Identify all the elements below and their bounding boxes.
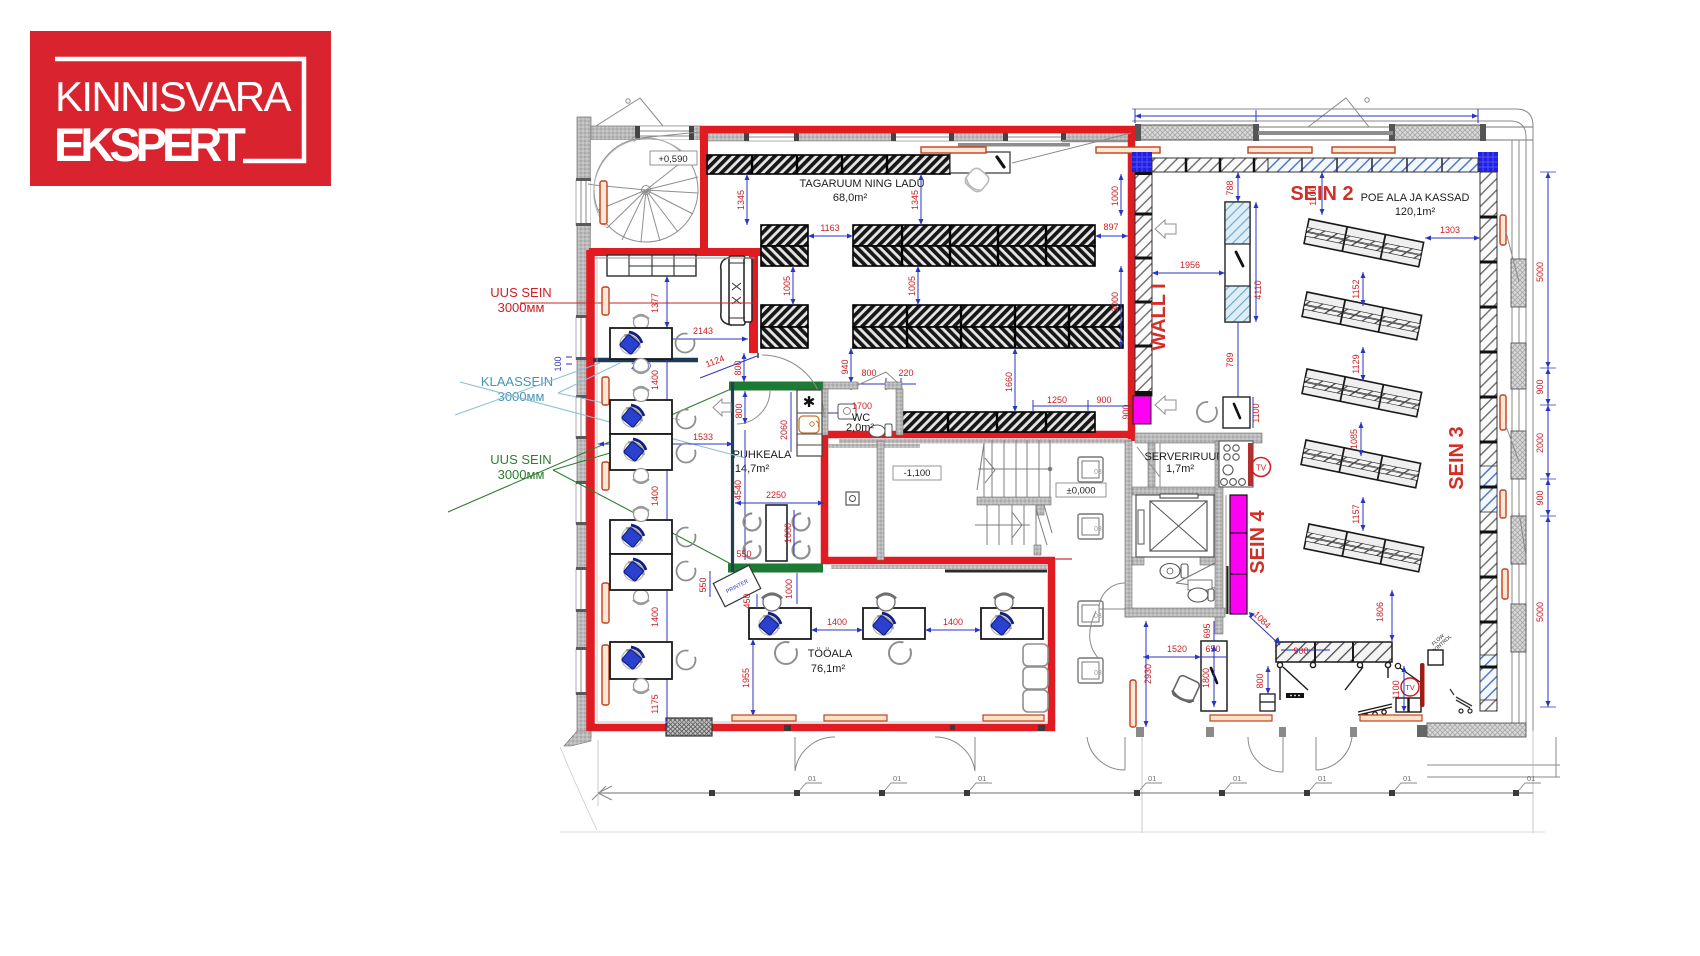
svg-text:1345: 1345 [736,190,746,210]
svg-text:1956: 1956 [1180,260,1200,270]
svg-text:SERVERIRUUM: SERVERIRUUM [1144,451,1225,463]
svg-text:1955: 1955 [741,668,751,688]
svg-text:450: 450 [742,593,752,608]
svg-text:800: 800 [733,360,743,375]
svg-text:1157: 1157 [1351,504,1361,523]
svg-text:5000: 5000 [1535,602,1545,622]
svg-text:100: 100 [553,356,563,371]
svg-text:-1,100: -1,100 [904,468,931,479]
svg-text:1345: 1345 [910,190,920,210]
svg-text:1660: 1660 [1004,372,1014,392]
svg-text:1377: 1377 [650,293,660,313]
svg-text:1400: 1400 [827,617,847,627]
svg-text:695: 695 [1202,623,1212,638]
svg-text:PUHKEALA: PUHKEALA [733,449,792,461]
svg-text:03: 03 [1094,469,1102,476]
svg-text:SEIN 3: SEIN 3 [1446,426,1468,489]
svg-text:TAGARUUM NING LADU: TAGARUUM NING LADU [799,178,924,190]
svg-text:1000: 1000 [784,579,794,599]
svg-text:3000: 3000 [1110,292,1120,312]
svg-text:1000: 1000 [1110,186,1120,206]
svg-text:01: 01 [1403,774,1411,783]
svg-text:1533: 1533 [693,432,713,442]
svg-text:UUS SEIN: UUS SEIN [490,285,551,300]
svg-text:1163: 1163 [820,223,839,233]
svg-text:+0,590: +0,590 [658,154,687,165]
svg-text:UUS SEIN: UUS SEIN [490,452,551,467]
svg-text:14,7m²: 14,7m² [735,463,770,475]
svg-text:1520: 1520 [1167,644,1187,654]
svg-text:4110: 4110 [1253,280,1263,299]
svg-text:550: 550 [736,549,751,559]
svg-text:01: 01 [978,774,986,783]
svg-text:2930: 2930 [1143,664,1153,684]
svg-text:1400: 1400 [650,607,660,627]
svg-text:220: 220 [898,368,913,378]
svg-text:2143: 2143 [693,326,713,336]
svg-text:2060: 2060 [779,420,789,440]
svg-text:800: 800 [1255,673,1265,688]
svg-text:120,1m²: 120,1m² [1395,206,1436,218]
svg-text:1175: 1175 [650,694,660,713]
svg-text:TV: TV [1256,464,1267,473]
svg-text:1100: 1100 [1391,680,1401,699]
svg-text:900: 900 [1535,490,1545,505]
svg-text:2,0m²: 2,0m² [846,422,874,434]
svg-text:01: 01 [1233,774,1241,783]
svg-text:1700: 1700 [852,401,872,411]
svg-text:1100: 1100 [1308,186,1318,205]
svg-text:900: 900 [1293,646,1308,656]
svg-text:03: 03 [1094,670,1102,677]
svg-text:900: 900 [1535,379,1545,394]
svg-text:WALL I: WALL I [1148,283,1170,350]
svg-text:800: 800 [861,368,876,378]
svg-text:01: 01 [1527,774,1535,783]
svg-text:KLAASSEIN: KLAASSEIN [481,374,553,389]
svg-text:1400: 1400 [943,617,963,627]
svg-text:1400: 1400 [650,370,660,390]
svg-text:3000мм: 3000мм [498,300,545,315]
svg-text:1,7m²: 1,7m² [1166,463,1194,475]
svg-text:1005: 1005 [782,276,792,296]
svg-text:SEIN 4: SEIN 4 [1247,509,1269,573]
svg-text:EKSPERT: EKSPERT [54,118,246,171]
svg-text:1400: 1400 [650,486,660,506]
svg-text:900: 900 [1121,404,1131,419]
svg-text:TÖÖALA: TÖÖALA [808,648,853,660]
svg-text:900: 900 [1096,395,1111,405]
svg-text:1100: 1100 [1251,403,1261,422]
svg-text:01: 01 [1148,774,1156,783]
svg-text:1085: 1085 [1349,429,1359,449]
svg-text:1152: 1152 [1351,279,1361,298]
svg-text:POE ALA JA KASSAD: POE ALA JA KASSAD [1361,192,1470,204]
svg-text:76,1m²: 76,1m² [811,663,846,675]
svg-text:1250: 1250 [1047,395,1067,405]
svg-text:1005: 1005 [907,276,917,296]
svg-text:1680: 1680 [783,523,793,543]
svg-text:788: 788 [1225,180,1235,195]
svg-text:01: 01 [893,774,901,783]
svg-text:2000: 2000 [1535,433,1545,453]
svg-text:2250: 2250 [766,490,786,500]
svg-text:1800: 1800 [1201,668,1211,688]
svg-text:800: 800 [734,403,744,418]
svg-text:±0,000: ±0,000 [1067,486,1096,497]
svg-text:897: 897 [1103,222,1118,232]
svg-text:789: 789 [1225,352,1235,367]
svg-text:03: 03 [1094,526,1102,533]
svg-text:TV: TV [1405,683,1415,692]
svg-text:01: 01 [1318,774,1326,783]
svg-text:✱: ✱ [803,394,816,411]
svg-text:550: 550 [698,577,708,592]
svg-text:940: 940 [840,359,850,374]
svg-text:1806: 1806 [1375,602,1385,622]
svg-text:5000: 5000 [1535,262,1545,282]
svg-text:KINNISVARA: KINNISVARA [55,73,292,120]
svg-text:01: 01 [808,774,816,783]
svg-text:1303: 1303 [1440,225,1460,235]
svg-text:68,0m²: 68,0m² [833,192,868,204]
svg-text:03: 03 [1094,613,1102,620]
svg-text:1129: 1129 [1351,354,1361,373]
svg-text:4540: 4540 [733,480,743,500]
